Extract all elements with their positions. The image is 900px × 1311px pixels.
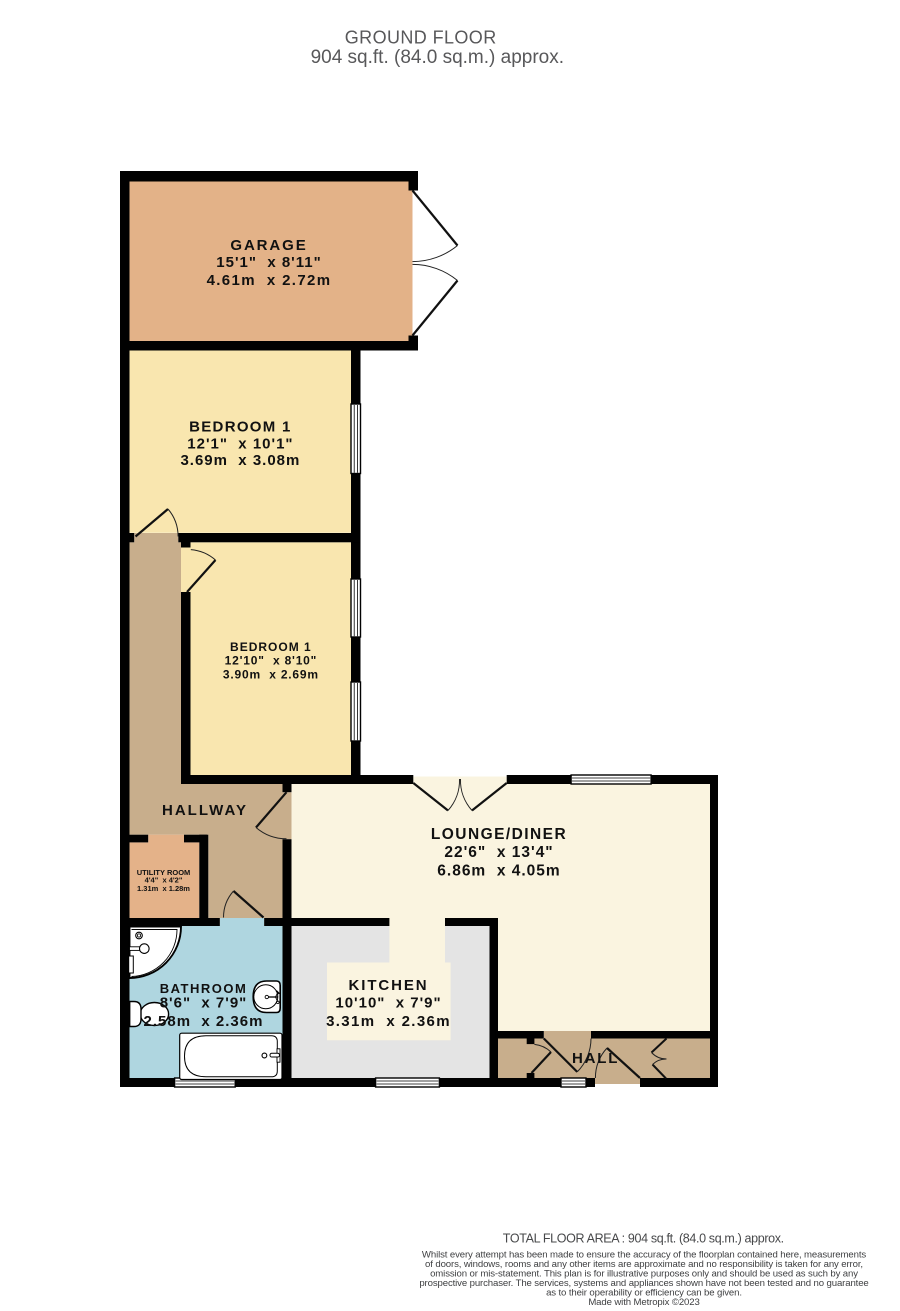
svg-text:12'1" x 10'1": 12'1" x 10'1" xyxy=(187,435,293,452)
svg-text:10'10" x 7'9": 10'10" x 7'9" xyxy=(335,995,441,1012)
svg-text:12'10" x 8'10": 12'10" x 8'10" xyxy=(225,653,317,667)
svg-text:GARAGE: GARAGE xyxy=(230,237,307,254)
svg-text:22'6" x 13'4": 22'6" x 13'4" xyxy=(444,844,553,861)
svg-text:KITCHEN: KITCHEN xyxy=(349,977,429,994)
svg-text:15'1" x 8'11": 15'1" x 8'11" xyxy=(216,254,321,271)
svg-text:904 sq.ft. (84.0 sq.m.) approx: 904 sq.ft. (84.0 sq.m.) approx. xyxy=(311,47,564,68)
svg-text:1.31m x 1.28m: 1.31m x 1.28m xyxy=(137,884,190,893)
svg-text:4.61m x 2.72m: 4.61m x 2.72m xyxy=(207,272,332,289)
svg-text:GROUND FLOOR: GROUND FLOOR xyxy=(345,28,497,48)
svg-text:3.31m x 2.36m: 3.31m x 2.36m xyxy=(326,1013,451,1030)
svg-text:HALLWAY: HALLWAY xyxy=(162,802,248,819)
svg-text:6.86m x 4.05m: 6.86m x 4.05m xyxy=(437,863,560,880)
svg-text:Made with Metropix ©2023: Made with Metropix ©2023 xyxy=(588,1297,699,1308)
svg-text:BEDROOM 1: BEDROOM 1 xyxy=(189,418,292,435)
svg-text:BEDROOM 1: BEDROOM 1 xyxy=(230,640,312,654)
svg-text:3.69m x 3.08m: 3.69m x 3.08m xyxy=(180,452,300,469)
svg-text:TOTAL FLOOR AREA : 904 sq.ft.: TOTAL FLOOR AREA : 904 sq.ft. (84.0 sq.m… xyxy=(503,1232,784,1246)
svg-text:HALL: HALL xyxy=(572,1050,619,1067)
svg-text:2.58m x 2.36m: 2.58m x 2.36m xyxy=(144,1013,264,1030)
svg-text:8'6" x 7'9": 8'6" x 7'9" xyxy=(160,995,248,1012)
svg-text:3.90m x 2.69m: 3.90m x 2.69m xyxy=(223,668,319,682)
svg-text:LOUNGE/DINER: LOUNGE/DINER xyxy=(431,826,567,843)
